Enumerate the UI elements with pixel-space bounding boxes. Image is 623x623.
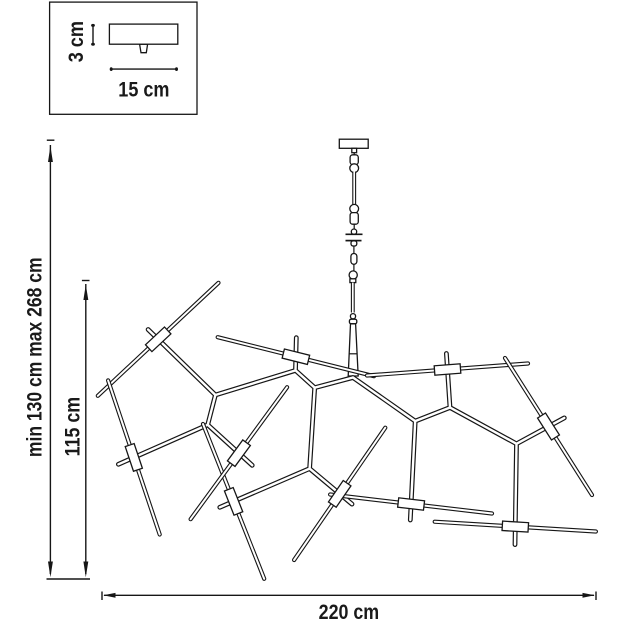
svg-text:115 cm: 115 cm: [61, 397, 85, 457]
svg-text:15 cm: 15 cm: [118, 78, 169, 102]
svg-text:220 cm: 220 cm: [319, 601, 379, 623]
svg-text:3 cm: 3 cm: [65, 21, 89, 62]
svg-text:min 130 cm max 268 cm: min 130 cm max 268 cm: [23, 257, 47, 457]
